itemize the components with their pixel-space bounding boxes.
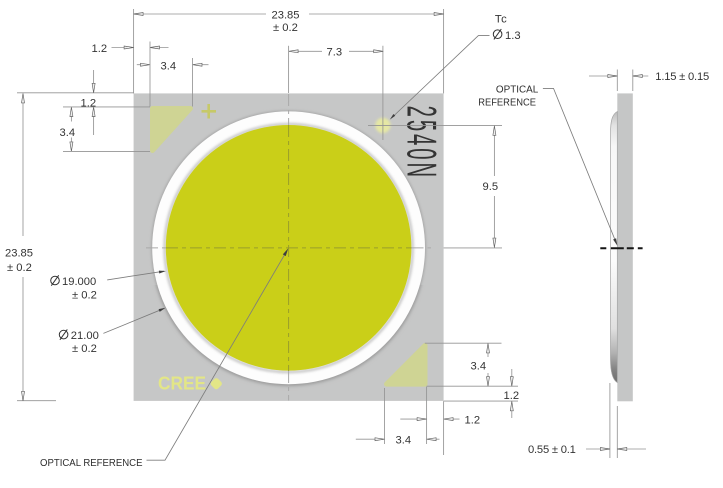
svg-text:1.3: 1.3 xyxy=(505,30,521,42)
svg-text:± 0.2: ± 0.2 xyxy=(72,343,97,355)
svg-text:23.85: 23.85 xyxy=(5,248,33,260)
svg-text:Tc: Tc xyxy=(495,14,507,26)
svg-text:± 0.2: ± 0.2 xyxy=(7,262,32,274)
svg-text:23.85: 23.85 xyxy=(272,10,300,22)
svg-text:OPTICAL REFERENCE: OPTICAL REFERENCE xyxy=(40,458,143,469)
svg-text:2540N: 2540N xyxy=(398,106,445,181)
svg-text:3.4: 3.4 xyxy=(161,60,177,72)
svg-text:9.5: 9.5 xyxy=(483,181,499,193)
svg-text:CREE: CREE xyxy=(158,372,206,393)
svg-text:1.2: 1.2 xyxy=(92,43,108,55)
svg-text:1.2: 1.2 xyxy=(504,390,520,402)
svg-text:3.4: 3.4 xyxy=(471,361,487,373)
svg-text:± 0.2: ± 0.2 xyxy=(72,289,97,301)
svg-text:OPTICAL: OPTICAL xyxy=(496,85,539,96)
svg-text:3.4: 3.4 xyxy=(396,435,412,447)
svg-text:1.15 ± 0.15: 1.15 ± 0.15 xyxy=(655,71,709,83)
svg-text:0.55 ± 0.1: 0.55 ± 0.1 xyxy=(528,444,576,456)
svg-text:21.00: 21.00 xyxy=(71,330,99,342)
svg-text:7.3: 7.3 xyxy=(327,47,343,59)
svg-text:19.000: 19.000 xyxy=(62,276,96,288)
svg-text:± 0.2: ± 0.2 xyxy=(273,22,298,34)
svg-text:1.2: 1.2 xyxy=(81,97,97,109)
svg-text:3.4: 3.4 xyxy=(60,127,76,139)
svg-text:REFERENCE: REFERENCE xyxy=(478,98,536,109)
svg-text:1.2: 1.2 xyxy=(465,415,481,427)
